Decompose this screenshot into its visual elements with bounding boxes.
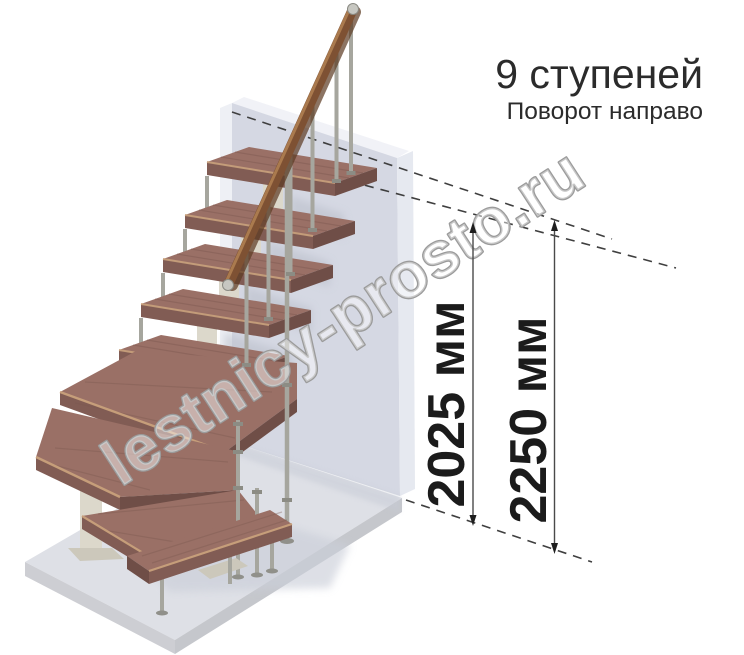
page-title: 9 ступеней bbox=[495, 51, 703, 97]
wall-right-side bbox=[397, 151, 415, 496]
leg-foot bbox=[156, 611, 168, 616]
header-block: 9 ступеней Поворот направо bbox=[495, 51, 703, 125]
handrail-end-cap bbox=[223, 280, 234, 291]
handrail-end-cap bbox=[348, 4, 359, 15]
dimension-label-2250: 2250 мм bbox=[500, 316, 558, 523]
leg-foot bbox=[266, 569, 278, 574]
staircase-illustration: lestnicy-prosto.ru 2025 мм 2250 мм 9 сту… bbox=[0, 0, 744, 655]
page-subtitle: Поворот направо bbox=[507, 98, 703, 125]
staircase-diagram-page: lestnicy-prosto.ru 2025 мм 2250 мм 9 сту… bbox=[0, 0, 744, 655]
dimension-label-2025: 2025 мм bbox=[418, 300, 476, 507]
